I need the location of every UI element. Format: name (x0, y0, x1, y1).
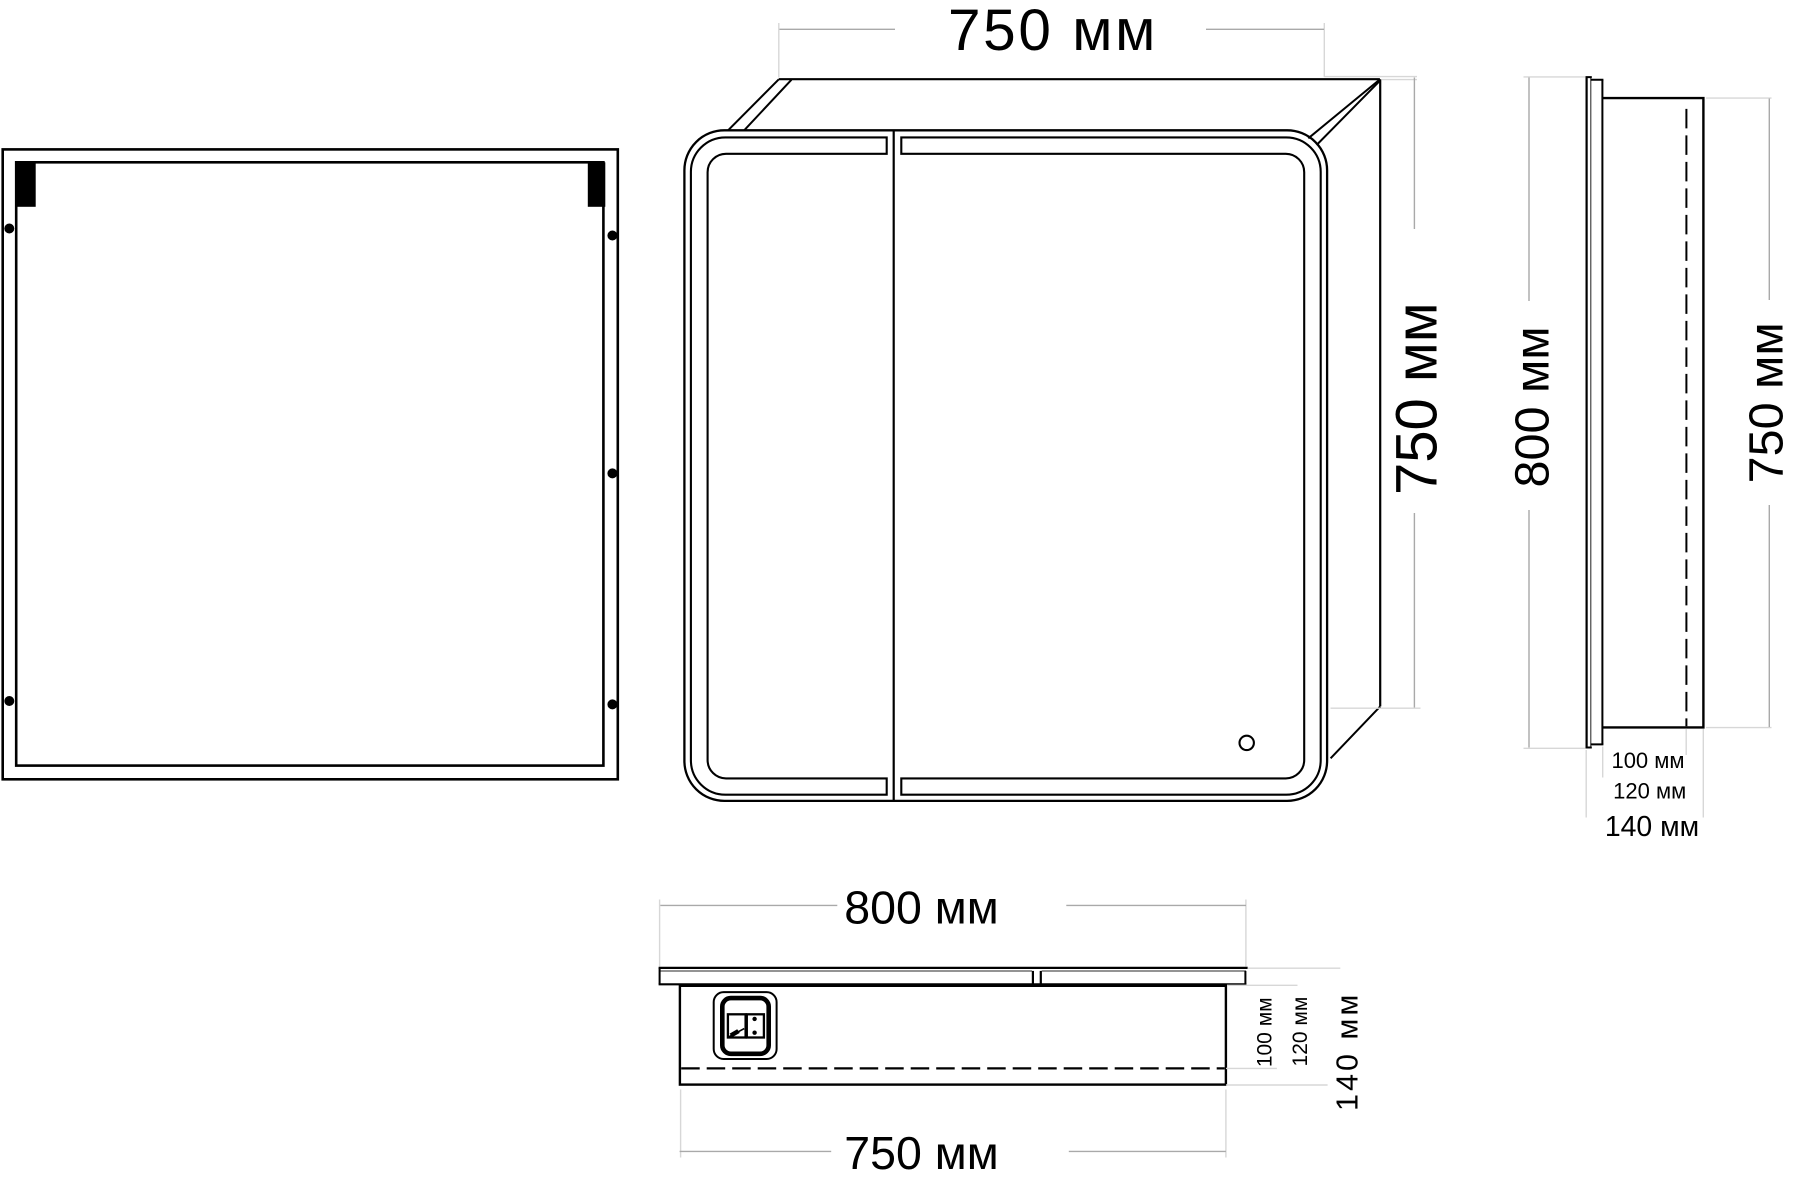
svg-text:750 мм: 750 мм (1385, 302, 1450, 495)
svg-text:750 мм: 750 мм (948, 0, 1158, 63)
svg-text:100 мм: 100 мм (1254, 997, 1277, 1067)
svg-text:120 мм: 120 мм (1289, 997, 1312, 1067)
svg-text:140 мм: 140 мм (1605, 811, 1699, 843)
svg-text:120 мм: 120 мм (1613, 778, 1686, 803)
svg-text:800 мм: 800 мм (844, 881, 998, 933)
svg-text:750 мм: 750 мм (844, 1127, 998, 1179)
svg-text:800 мм: 800 мм (1505, 326, 1559, 487)
svg-text:100 мм: 100 мм (1611, 748, 1684, 773)
svg-text:140 мм: 140 мм (1331, 992, 1365, 1111)
svg-text:750 мм: 750 мм (1740, 322, 1794, 483)
